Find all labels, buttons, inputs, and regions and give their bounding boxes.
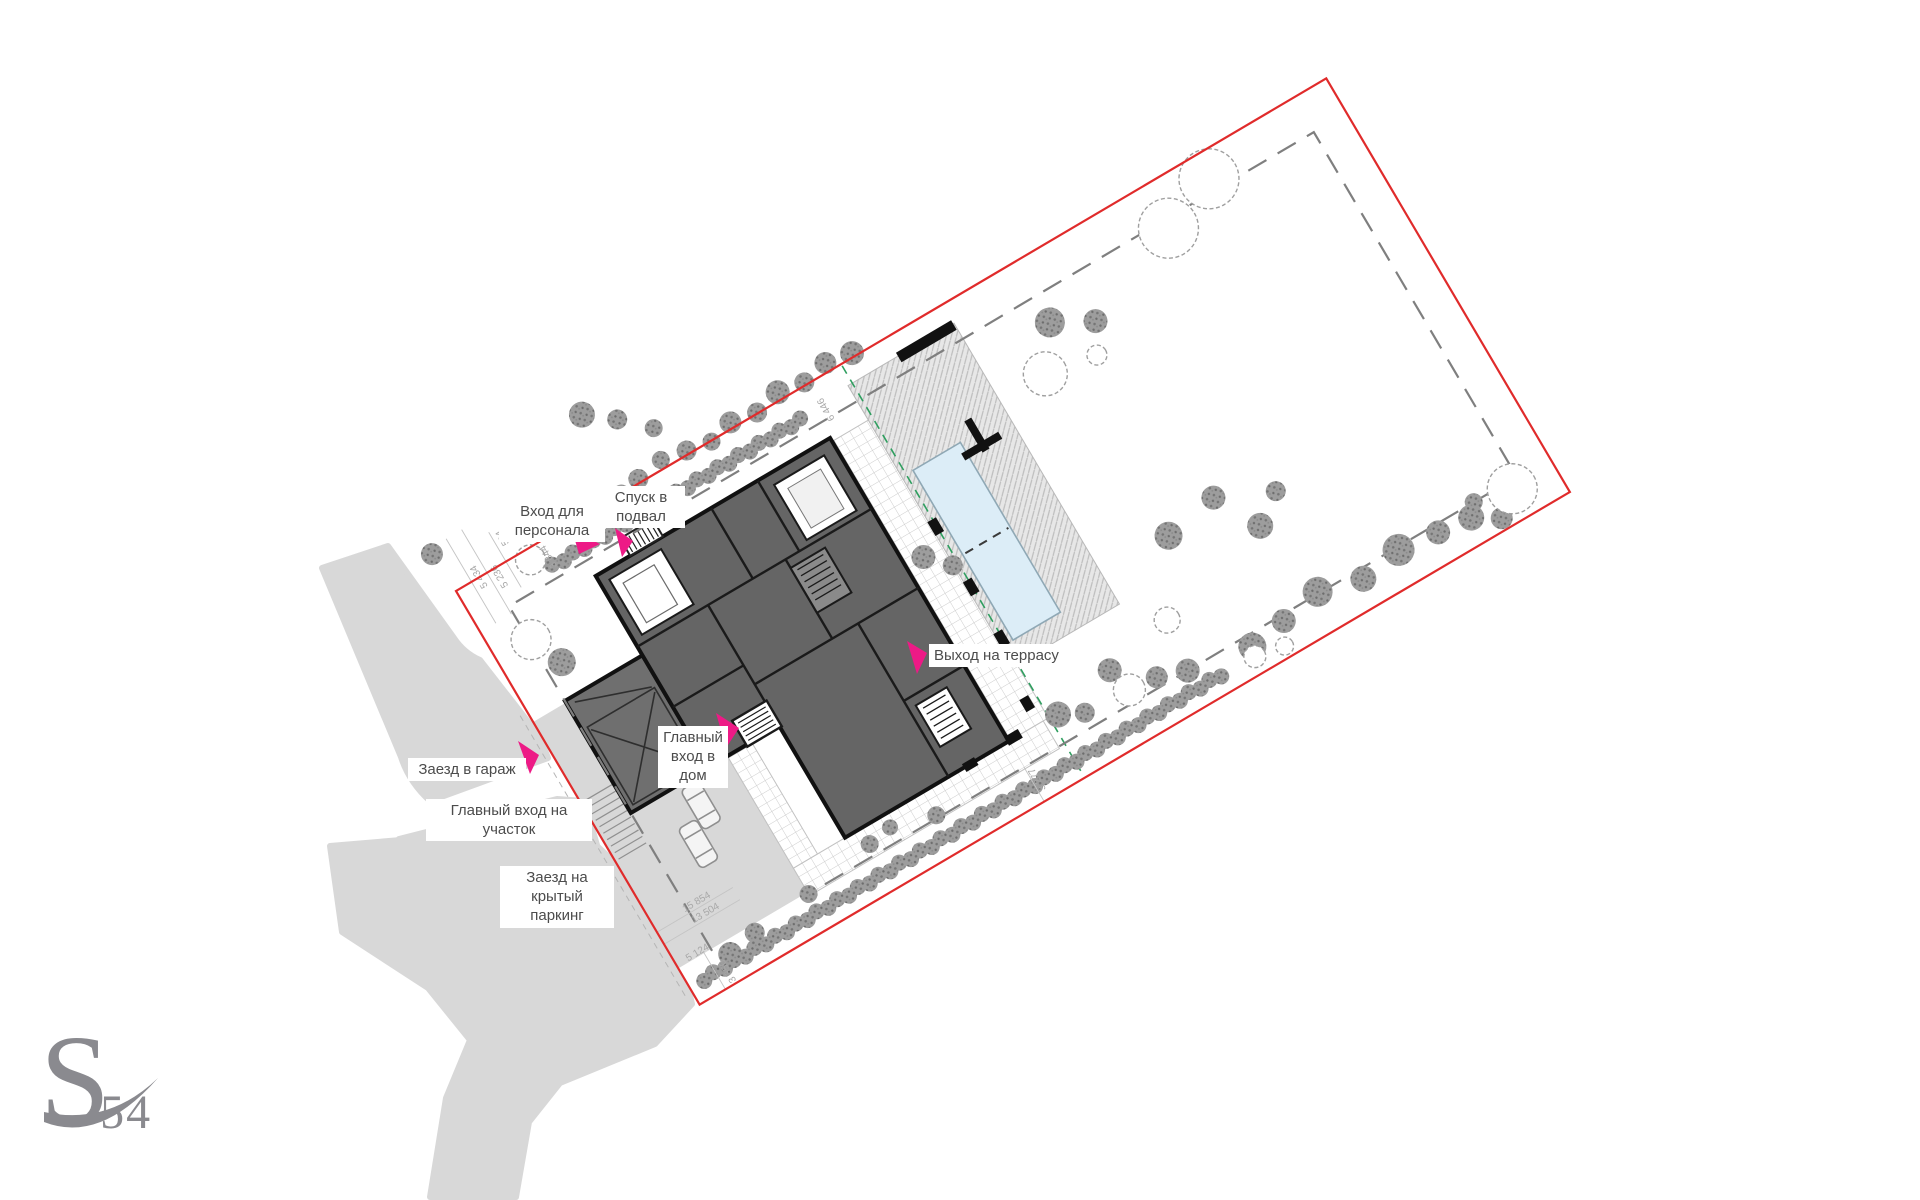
site-plan-canvas: 5 434 5 236 524 3 844 6 446 15 854 13 50…	[0, 0, 1920, 1200]
terrace-exit-label: Выход на террасу	[929, 644, 1064, 667]
tree-stippled	[604, 406, 631, 433]
site-plan-page: 5 434 5 236 524 3 844 6 446 15 854 13 50…	[0, 0, 1920, 1200]
logo-number: 54	[100, 1086, 152, 1139]
garage-entry-label: Заезд в гараж	[408, 758, 526, 781]
logo: S54	[40, 1018, 152, 1144]
tree-stippled	[564, 397, 600, 433]
parking-entry-label: Заезд на крытый паркинг	[500, 866, 614, 928]
tree-stippled	[641, 416, 666, 441]
house-entrance-label: Главный вход в дом	[658, 726, 728, 788]
basement-entrance-label: Спуск в подвал	[597, 486, 685, 528]
site-entrance-label: Главный вход на участок	[426, 799, 592, 841]
staff-entrance-label: Вход для персонала	[499, 500, 605, 542]
tree-stippled	[417, 539, 447, 569]
